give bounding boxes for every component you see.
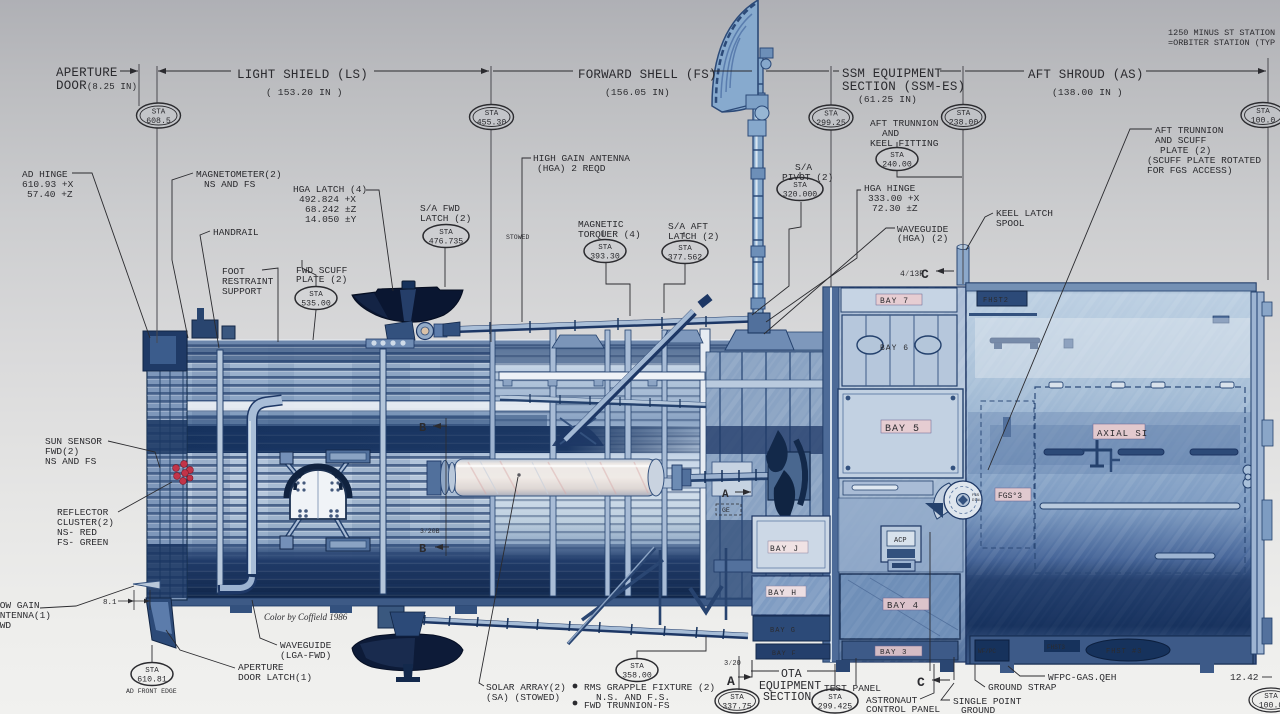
svg-text:STA: STA bbox=[890, 152, 904, 160]
svg-text:(156.05 IN): (156.05 IN) bbox=[605, 87, 670, 98]
svg-text:3⁄20: 3⁄20 bbox=[724, 660, 741, 668]
svg-text:BAY J: BAY J bbox=[770, 545, 799, 554]
svg-text:(138.00 IN ): (138.00 IN ) bbox=[1052, 87, 1123, 98]
svg-text:FS- GREEN: FS- GREEN bbox=[57, 537, 108, 548]
svg-text:BAY F: BAY F bbox=[772, 650, 797, 657]
svg-text:APERTURE: APERTURE bbox=[56, 66, 118, 80]
svg-text:GROUND: GROUND bbox=[961, 705, 996, 714]
svg-text:14.050 ±Y: 14.050 ±Y bbox=[305, 214, 357, 225]
svg-text:BAY 4: BAY 4 bbox=[887, 601, 919, 611]
svg-text:(HGA) 2 REQD: (HGA) 2 REQD bbox=[537, 163, 606, 174]
svg-text:STA: STA bbox=[730, 694, 744, 702]
svg-text:476.735: 476.735 bbox=[429, 238, 463, 247]
svg-text:STA: STA bbox=[1256, 108, 1270, 116]
svg-text:(HGA) (2): (HGA) (2) bbox=[897, 233, 948, 244]
svg-text:PLATE (2): PLATE (2) bbox=[296, 274, 347, 285]
svg-text:299.25: 299.25 bbox=[816, 119, 846, 128]
svg-text:BAY 5: BAY 5 bbox=[885, 424, 920, 435]
svg-text:100.0: 100.0 bbox=[1251, 117, 1276, 126]
svg-text:SPOOL: SPOOL bbox=[996, 218, 1025, 229]
svg-text:FHST #3: FHST #3 bbox=[1106, 648, 1142, 656]
svg-text:KEEL FITTING: KEEL FITTING bbox=[870, 138, 939, 149]
svg-text:610.81: 610.81 bbox=[137, 676, 167, 685]
svg-text:DIAL: DIAL bbox=[972, 499, 982, 503]
svg-text:238.00: 238.00 bbox=[949, 119, 979, 128]
svg-text:GE: GE bbox=[722, 507, 730, 514]
svg-text:STA: STA bbox=[1264, 693, 1278, 701]
svg-text:DOOR(8.25 IN): DOOR(8.25 IN) bbox=[56, 79, 137, 93]
svg-text:C: C bbox=[917, 675, 925, 690]
svg-text:STA: STA bbox=[598, 244, 612, 252]
svg-text:STA: STA bbox=[152, 109, 166, 117]
svg-text:455.30: 455.30 bbox=[477, 119, 507, 128]
svg-text:BAY H: BAY H bbox=[768, 589, 797, 598]
svg-text:WFPC-GAS.QEH: WFPC-GAS.QEH bbox=[1048, 672, 1116, 683]
svg-text:=ORBITER STATION (TYP: =ORBITER STATION (TYP bbox=[1168, 38, 1275, 48]
svg-text:608.5: 608.5 bbox=[146, 117, 171, 126]
svg-text:A: A bbox=[722, 489, 729, 501]
svg-text:STA: STA bbox=[145, 667, 159, 675]
svg-text:FGS°3: FGS°3 bbox=[998, 492, 1022, 501]
svg-text:320.000: 320.000 bbox=[783, 191, 817, 200]
svg-text:DOOR LATCH(1): DOOR LATCH(1) bbox=[238, 672, 312, 683]
svg-text:BAY G: BAY G bbox=[770, 627, 796, 635]
svg-text:GROUND STRAP: GROUND STRAP bbox=[988, 682, 1057, 693]
svg-text:LATCH (2): LATCH (2) bbox=[420, 213, 471, 224]
svg-text:STA: STA bbox=[793, 182, 807, 190]
svg-text:STA: STA bbox=[828, 694, 842, 702]
svg-text:PIVOT (2): PIVOT (2) bbox=[782, 172, 833, 183]
svg-text:358.00: 358.00 bbox=[622, 672, 652, 681]
svg-text:8.1: 8.1 bbox=[103, 599, 117, 607]
svg-text:STA: STA bbox=[824, 111, 838, 119]
svg-text:STA: STA bbox=[630, 663, 644, 671]
svg-text:FHST2: FHST2 bbox=[983, 297, 1009, 305]
svg-text:TORQUER (4): TORQUER (4) bbox=[578, 229, 641, 240]
svg-text:3⁄20B: 3⁄20B bbox=[420, 528, 440, 535]
svg-text:ACP: ACP bbox=[894, 537, 907, 545]
svg-text:1250 MINUS ST STATION: 1250 MINUS ST STATION bbox=[1168, 28, 1275, 38]
svg-text:Color by Coffield 1986: Color by Coffield 1986 bbox=[264, 612, 348, 622]
svg-text:(LGA-FWD): (LGA-FWD) bbox=[280, 650, 331, 661]
svg-text:337.75: 337.75 bbox=[722, 703, 752, 712]
svg-text:(61.25 IN): (61.25 IN) bbox=[858, 94, 917, 105]
svg-text:A: A bbox=[727, 674, 735, 689]
svg-text:BAY 3: BAY 3 bbox=[880, 649, 908, 657]
svg-text:AXIAL SI: AXIAL SI bbox=[1097, 429, 1148, 439]
svg-text:SECTION (SSM-ES): SECTION (SSM-ES) bbox=[842, 80, 965, 94]
svg-text:C: C bbox=[921, 267, 929, 282]
svg-text:57.40 +Z: 57.40 +Z bbox=[27, 189, 73, 200]
svg-text:LIGHT SHIELD (LS): LIGHT SHIELD (LS) bbox=[237, 68, 368, 82]
svg-text:(SA) (STOWED): (SA) (STOWED) bbox=[486, 692, 560, 703]
svg-text:BAY 7: BAY 7 bbox=[880, 297, 909, 306]
svg-text:FWD: FWD bbox=[0, 620, 11, 631]
svg-text:393.30: 393.30 bbox=[590, 253, 620, 262]
svg-text:AFT SHROUD (AS): AFT SHROUD (AS) bbox=[1028, 68, 1144, 82]
svg-text:STA: STA bbox=[309, 291, 323, 299]
svg-text:FGS: FGS bbox=[972, 494, 980, 498]
svg-text:72.30 ±Z: 72.30 ±Z bbox=[872, 203, 918, 214]
svg-text:NS AND FS: NS AND FS bbox=[45, 456, 97, 467]
svg-text:STA: STA bbox=[485, 110, 499, 118]
svg-text:WF/PC: WF/PC bbox=[978, 648, 996, 655]
svg-text:SUPPORT: SUPPORT bbox=[222, 286, 262, 297]
svg-text:12.42: 12.42 bbox=[1230, 672, 1259, 683]
svg-text:299.425: 299.425 bbox=[818, 703, 852, 712]
svg-text:240.00: 240.00 bbox=[882, 161, 912, 170]
svg-text:AFT TRUNNION: AFT TRUNNION bbox=[870, 118, 938, 129]
svg-text:AD FRONT EDGE: AD FRONT EDGE bbox=[126, 688, 177, 695]
svg-text:FOR FGS ACCESS): FOR FGS ACCESS) bbox=[1147, 165, 1233, 176]
svg-text:STOWED: STOWED bbox=[506, 234, 530, 241]
svg-text:TEST PANEL: TEST PANEL bbox=[824, 683, 881, 694]
svg-text:377.562: 377.562 bbox=[668, 254, 702, 263]
svg-text:100.0: 100.0 bbox=[1259, 702, 1280, 711]
svg-text:STA: STA bbox=[957, 110, 971, 118]
svg-text:CONTROL PANEL: CONTROL PANEL bbox=[866, 704, 940, 714]
svg-text:FWD TRUNNION-FS: FWD TRUNNION-FS bbox=[584, 700, 670, 711]
svg-text:SECTION: SECTION bbox=[763, 691, 811, 704]
svg-text:B: B bbox=[419, 421, 426, 435]
svg-text:535.00: 535.00 bbox=[301, 300, 331, 309]
svg-text:FHST3: FHST3 bbox=[1047, 644, 1065, 651]
svg-text:BAY 6: BAY 6 bbox=[880, 344, 909, 353]
svg-text:B: B bbox=[419, 542, 426, 556]
svg-text:( 153.20 IN ): ( 153.20 IN ) bbox=[266, 87, 343, 98]
svg-text:SSM EQUIPMENT: SSM EQUIPMENT bbox=[842, 67, 942, 81]
svg-text:NS AND FS: NS AND FS bbox=[204, 179, 256, 190]
svg-text:STA: STA bbox=[439, 229, 453, 237]
svg-text:STA: STA bbox=[678, 245, 692, 253]
svg-text:FORWARD SHELL (FS): FORWARD SHELL (FS) bbox=[578, 68, 717, 82]
svg-text:HANDRAIL: HANDRAIL bbox=[213, 227, 259, 238]
svg-text:LATCH (2): LATCH (2) bbox=[668, 231, 719, 242]
